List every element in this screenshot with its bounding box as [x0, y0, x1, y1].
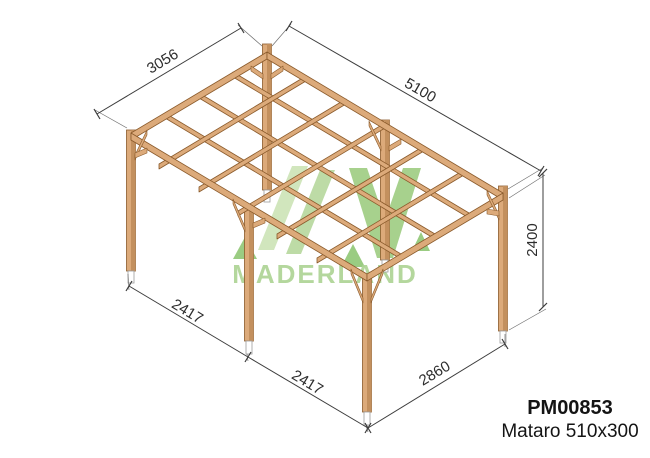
dimension-line-3056 — [97, 28, 241, 114]
post-shade — [385, 120, 390, 260]
dimension-annotations: 3056 5100 2400 2417 2417 2860 — [94, 21, 547, 433]
dimension-label-bay-left-1: 2417 — [169, 296, 206, 328]
knee-brace — [135, 148, 147, 158]
product-label: PM00853 Mataro 510x300 — [501, 397, 638, 442]
product-name: Mataro 510x300 — [501, 421, 638, 442]
drawing-svg: MADERLAND — [0, 0, 650, 458]
dimension-line-5100 — [289, 26, 541, 171]
pergola-technical-drawing: MADERLAND — [0, 0, 650, 458]
knee-brace — [389, 139, 401, 151]
post-anchor — [364, 412, 370, 425]
post-anchor — [128, 271, 134, 283]
dimension-label-post-height: 2400 — [524, 223, 541, 256]
post-anchor — [246, 341, 252, 354]
knee-brace — [251, 66, 263, 79]
post-shade — [267, 44, 272, 190]
dimension-label-bay-left-2: 2417 — [289, 367, 326, 399]
dimension-label-roof-side-left: 3056 — [144, 46, 181, 78]
dimension-ticks — [94, 21, 547, 433]
knee-brace — [271, 66, 283, 79]
maderland-watermark: MADERLAND — [232, 166, 430, 289]
knee-brace — [253, 218, 265, 228]
dimension-label-front-span: 2860 — [416, 358, 453, 390]
post-shade — [131, 130, 136, 271]
post-shade — [503, 186, 508, 331]
knee-brace — [487, 209, 499, 216]
dimension-line-2860 — [368, 344, 505, 428]
product-code: PM00853 — [527, 397, 613, 419]
